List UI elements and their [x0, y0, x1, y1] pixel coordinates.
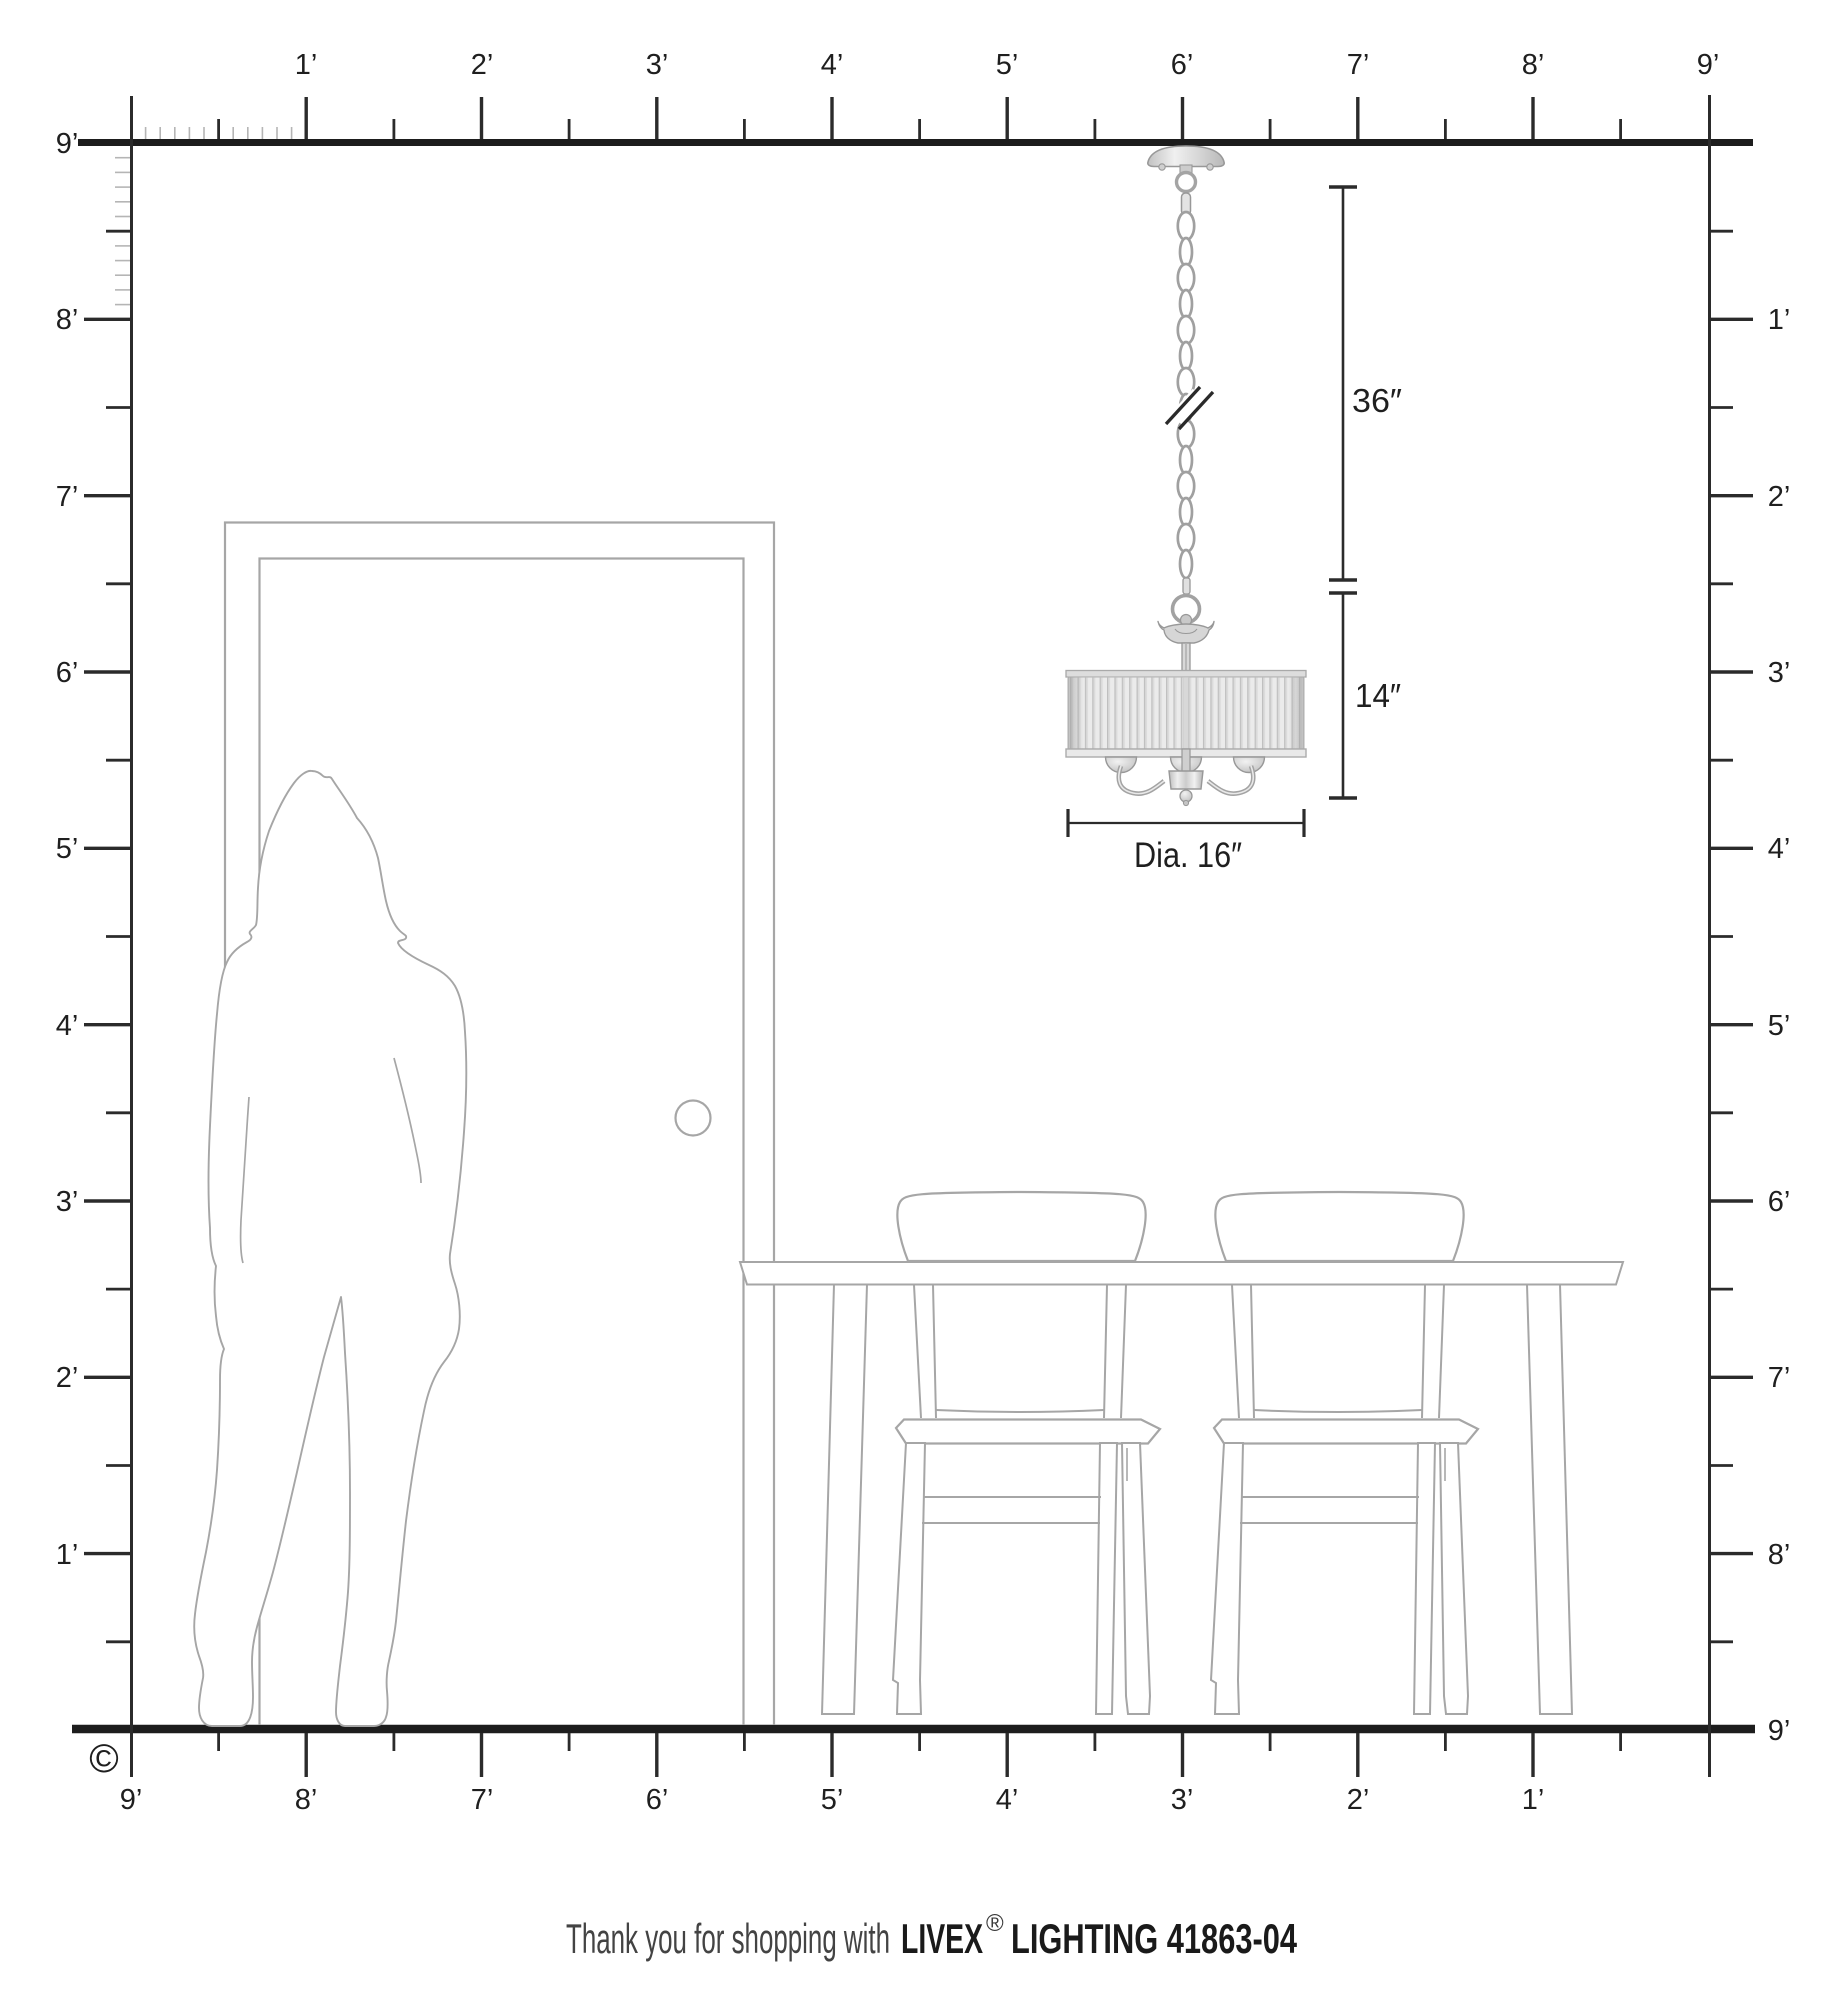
svg-text:8’: 8’ — [1522, 49, 1545, 81]
svg-text:9’: 9’ — [56, 128, 79, 160]
svg-text:1’: 1’ — [56, 1539, 79, 1571]
svg-text:3’: 3’ — [56, 1186, 79, 1218]
svg-text:14″: 14″ — [1355, 677, 1401, 714]
svg-text:5’: 5’ — [996, 49, 1019, 81]
svg-text:3’: 3’ — [1171, 1784, 1194, 1816]
svg-text:6’: 6’ — [56, 657, 79, 689]
svg-text:5’: 5’ — [821, 1784, 844, 1816]
svg-text:4’: 4’ — [56, 1010, 79, 1042]
svg-text:5’: 5’ — [1768, 1010, 1791, 1042]
svg-text:4’: 4’ — [996, 1784, 1019, 1816]
svg-text:6’: 6’ — [1171, 49, 1194, 81]
svg-text:LIGHTING 41863-04: LIGHTING 41863-04 — [1011, 1915, 1297, 1962]
svg-text:9’: 9’ — [120, 1784, 143, 1816]
svg-text:8’: 8’ — [295, 1784, 318, 1816]
svg-text:9’: 9’ — [1768, 1715, 1791, 1747]
svg-text:8’: 8’ — [1768, 1539, 1791, 1571]
svg-text:2’: 2’ — [1768, 481, 1791, 513]
svg-text:©: © — [89, 1737, 118, 1781]
svg-text:6’: 6’ — [646, 1784, 669, 1816]
svg-text:2’: 2’ — [471, 49, 494, 81]
svg-text:8’: 8’ — [56, 304, 79, 336]
svg-text:Thank you for shopping with: Thank you for shopping with — [566, 1915, 890, 1962]
svg-text:Dia. 16″: Dia. 16″ — [1134, 836, 1242, 875]
svg-text:9’: 9’ — [1697, 49, 1720, 81]
svg-text:7’: 7’ — [56, 481, 79, 513]
svg-text:®: ® — [986, 1910, 1004, 1937]
svg-text:3’: 3’ — [1768, 657, 1791, 689]
svg-text:4’: 4’ — [1768, 833, 1791, 865]
svg-text:1’: 1’ — [1768, 304, 1791, 336]
svg-text:2’: 2’ — [56, 1362, 79, 1394]
svg-text:7’: 7’ — [1347, 49, 1370, 81]
svg-text:3’: 3’ — [646, 49, 669, 81]
svg-text:1’: 1’ — [295, 49, 318, 81]
svg-text:6’: 6’ — [1768, 1186, 1791, 1218]
svg-text:LIVEX: LIVEX — [901, 1915, 983, 1962]
svg-text:7’: 7’ — [471, 1784, 494, 1816]
svg-text:7’: 7’ — [1768, 1362, 1791, 1394]
svg-text:5’: 5’ — [56, 833, 79, 865]
svg-text:1’: 1’ — [1522, 1784, 1545, 1816]
svg-text:4’: 4’ — [821, 49, 844, 81]
svg-text:2’: 2’ — [1347, 1784, 1370, 1816]
svg-text:36″: 36″ — [1352, 382, 1402, 419]
